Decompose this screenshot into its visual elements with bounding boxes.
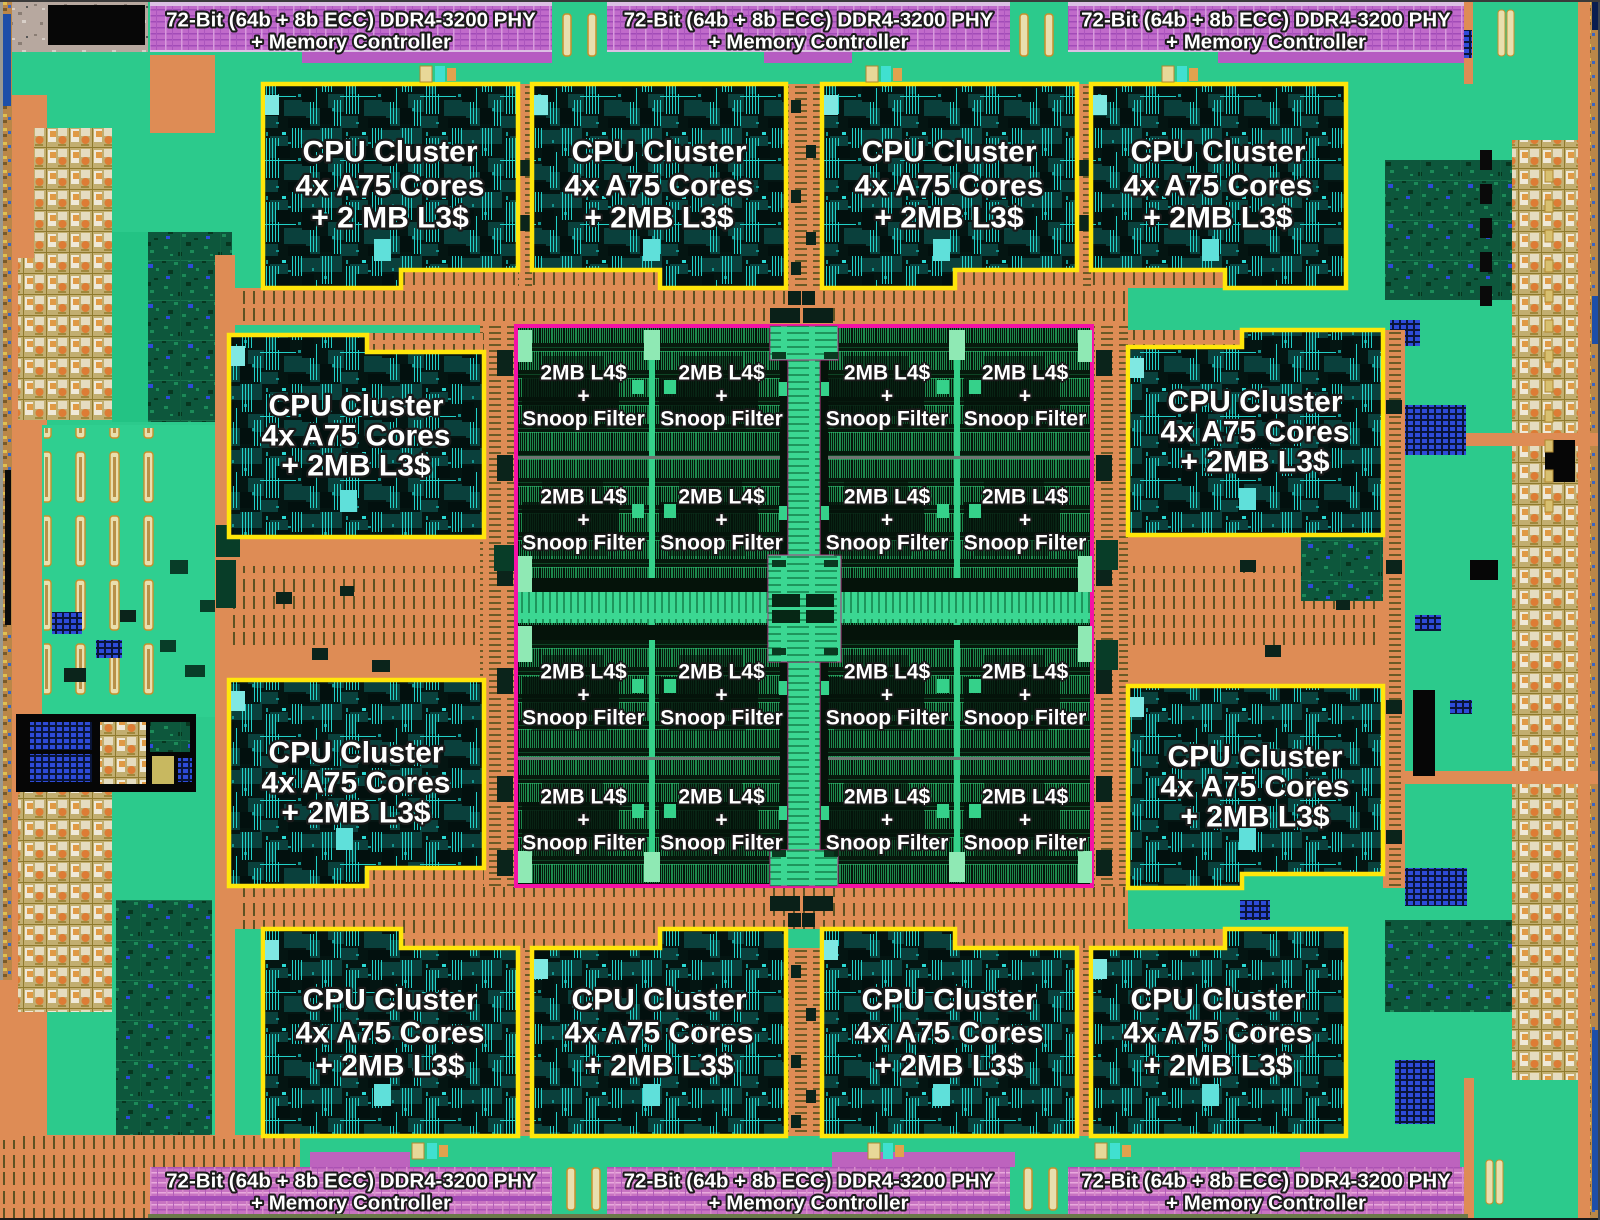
svg-text:2MB L4$: 2MB L4$ [844, 661, 931, 684]
svg-text:Snoop Filter: Snoop Filter [522, 707, 645, 730]
svg-text:+ 2MB L3$: + 2MB L3$ [1180, 446, 1330, 479]
svg-text:2MB L4$: 2MB L4$ [678, 486, 765, 509]
svg-text:Snoop Filter: Snoop Filter [522, 532, 645, 555]
svg-text:2MB L4$: 2MB L4$ [844, 786, 931, 809]
svg-text:4x A75 Cores: 4x A75 Cores [262, 767, 451, 800]
svg-text:4x A75 Cores: 4x A75 Cores [1161, 416, 1350, 449]
svg-text:2MB L4$: 2MB L4$ [540, 661, 627, 684]
svg-text:72-Bit (64b + 8b ECC) DDR4-320: 72-Bit (64b + 8b ECC) DDR4-3200 PHY [1081, 1170, 1451, 1193]
svg-text:2MB L4$: 2MB L4$ [540, 786, 627, 809]
svg-text:+ 2 MB L3$: + 2 MB L3$ [311, 202, 469, 235]
svg-text:Snoop Filter: Snoop Filter [660, 707, 783, 730]
svg-text:Snoop Filter: Snoop Filter [660, 832, 783, 855]
svg-text:CPU Cluster: CPU Cluster [861, 136, 1036, 169]
svg-text:CPU Cluster: CPU Cluster [1167, 741, 1342, 774]
svg-text:Snoop Filter: Snoop Filter [964, 707, 1087, 730]
svg-text:+: + [715, 684, 727, 707]
svg-text:+ 2MB L3$: + 2MB L3$ [281, 450, 431, 483]
svg-text:+ Memory Controller: + Memory Controller [1166, 31, 1366, 54]
svg-text:CPU Cluster: CPU Cluster [302, 984, 477, 1017]
svg-text:4x A75 Cores: 4x A75 Cores [262, 420, 451, 453]
svg-text:+: + [715, 809, 727, 832]
svg-text:Snoop Filter: Snoop Filter [660, 532, 783, 555]
svg-text:+ 2MB L3$: + 2MB L3$ [584, 202, 734, 235]
svg-text:Snoop Filter: Snoop Filter [522, 408, 645, 431]
svg-text:2MB L4$: 2MB L4$ [540, 486, 627, 509]
svg-text:CPU Cluster: CPU Cluster [1130, 136, 1305, 169]
svg-text:72-Bit (64b + 8b ECC) DDR4-320: 72-Bit (64b + 8b ECC) DDR4-3200 PHY [624, 1170, 994, 1193]
svg-text:4x A75 Cores: 4x A75 Cores [565, 170, 754, 203]
svg-text:2MB L4$: 2MB L4$ [982, 661, 1069, 684]
svg-text:2MB L4$: 2MB L4$ [844, 486, 931, 509]
svg-text:+: + [1019, 809, 1031, 832]
svg-text:4x A75 Cores: 4x A75 Cores [296, 1017, 485, 1050]
svg-text:Snoop Filter: Snoop Filter [522, 832, 645, 855]
svg-text:+: + [881, 509, 893, 532]
svg-text:CPU Cluster: CPU Cluster [1167, 386, 1342, 419]
svg-text:4x A75 Cores: 4x A75 Cores [855, 1017, 1044, 1050]
svg-text:CPU Cluster: CPU Cluster [571, 136, 746, 169]
svg-text:+: + [715, 385, 727, 408]
svg-text:2MB L4$: 2MB L4$ [982, 786, 1069, 809]
svg-text:+ Memory Controller: + Memory Controller [709, 1192, 909, 1215]
svg-text:2MB L4$: 2MB L4$ [678, 362, 765, 385]
svg-text:2MB L4$: 2MB L4$ [982, 362, 1069, 385]
svg-text:Snoop Filter: Snoop Filter [826, 408, 949, 431]
svg-text:+: + [577, 385, 589, 408]
svg-text:4x A75 Cores: 4x A75 Cores [1161, 771, 1350, 804]
svg-text:+: + [577, 509, 589, 532]
svg-text:4x A75 Cores: 4x A75 Cores [296, 170, 485, 203]
svg-text:+ 2MB L3$: + 2MB L3$ [584, 1050, 734, 1083]
svg-text:+ 2MB L3$: + 2MB L3$ [315, 1050, 465, 1083]
svg-text:+: + [1019, 509, 1031, 532]
svg-text:+ 2MB L3$: + 2MB L3$ [1143, 202, 1293, 235]
svg-text:+: + [577, 684, 589, 707]
svg-text:CPU Cluster: CPU Cluster [861, 984, 1036, 1017]
svg-text:+ 2MB L3$: + 2MB L3$ [281, 797, 431, 830]
svg-text:2MB L4$: 2MB L4$ [678, 661, 765, 684]
svg-text:CPU Cluster: CPU Cluster [302, 136, 477, 169]
svg-text:+: + [1019, 385, 1031, 408]
svg-text:4x A75 Cores: 4x A75 Cores [565, 1017, 754, 1050]
svg-text:2MB L4$: 2MB L4$ [540, 362, 627, 385]
svg-text:Snoop Filter: Snoop Filter [826, 532, 949, 555]
svg-text:+: + [577, 809, 589, 832]
svg-text:CPU Cluster: CPU Cluster [268, 390, 443, 423]
svg-text:+: + [1019, 684, 1031, 707]
svg-text:CPU Cluster: CPU Cluster [1130, 984, 1305, 1017]
svg-text:Snoop Filter: Snoop Filter [660, 408, 783, 431]
svg-text:+: + [715, 509, 727, 532]
svg-text:72-Bit (64b + 8b ECC) DDR4-320: 72-Bit (64b + 8b ECC) DDR4-3200 PHY [624, 9, 994, 32]
svg-text:+ Memory Controller: + Memory Controller [1166, 1192, 1366, 1215]
svg-text:Snoop Filter: Snoop Filter [964, 532, 1087, 555]
svg-text:+: + [881, 385, 893, 408]
svg-text:72-Bit (64b + 8b ECC) DDR4-320: 72-Bit (64b + 8b ECC) DDR4-3200 PHY [166, 9, 536, 32]
svg-text:Snoop Filter: Snoop Filter [964, 408, 1087, 431]
svg-text:+ Memory Controller: + Memory Controller [251, 1192, 451, 1215]
svg-text:2MB L4$: 2MB L4$ [982, 486, 1069, 509]
svg-text:4x A75 Cores: 4x A75 Cores [855, 170, 1044, 203]
svg-text:+: + [881, 809, 893, 832]
svg-text:+ 2MB L3$: + 2MB L3$ [874, 1050, 1024, 1083]
svg-text:72-Bit (64b + 8b ECC) DDR4-320: 72-Bit (64b + 8b ECC) DDR4-3200 PHY [1081, 9, 1451, 32]
svg-text:Snoop Filter: Snoop Filter [964, 832, 1087, 855]
svg-text:Snoop Filter: Snoop Filter [826, 832, 949, 855]
svg-text:+ Memory Controller: + Memory Controller [251, 31, 451, 54]
svg-text:4x A75 Cores: 4x A75 Cores [1124, 1017, 1313, 1050]
svg-text:2MB L4$: 2MB L4$ [678, 786, 765, 809]
svg-text:Snoop Filter: Snoop Filter [826, 707, 949, 730]
svg-text:CPU Cluster: CPU Cluster [268, 737, 443, 770]
svg-text:+ 2MB L3$: + 2MB L3$ [874, 202, 1024, 235]
svg-text:CPU Cluster: CPU Cluster [571, 984, 746, 1017]
svg-text:2MB L4$: 2MB L4$ [844, 362, 931, 385]
svg-text:+: + [881, 684, 893, 707]
svg-text:72-Bit (64b + 8b ECC) DDR4-320: 72-Bit (64b + 8b ECC) DDR4-3200 PHY [166, 1170, 536, 1193]
svg-text:4x A75 Cores: 4x A75 Cores [1124, 170, 1313, 203]
svg-text:+ Memory Controller: + Memory Controller [709, 31, 909, 54]
svg-text:+ 2MB L3$: + 2MB L3$ [1143, 1050, 1293, 1083]
